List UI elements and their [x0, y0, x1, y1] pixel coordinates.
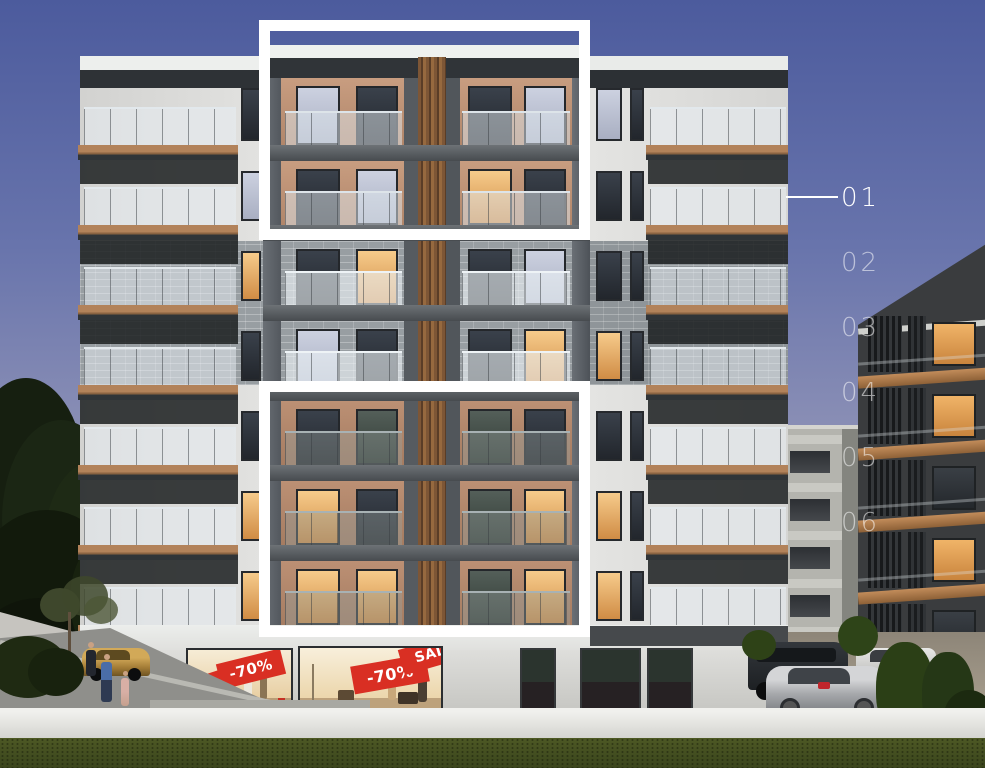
floor-label-05[interactable]: 05	[841, 444, 891, 472]
floor-01-leader-line	[786, 196, 838, 198]
floor-label-04[interactable]: 04	[841, 379, 891, 407]
floor-selector: 01 02 03 04 05 06	[0, 0, 985, 768]
floor-label-01[interactable]: 01	[841, 184, 891, 212]
floor-label-06[interactable]: 06	[841, 509, 891, 537]
building-floor-selector-screen: SALE -70% -70% SALE	[0, 0, 985, 768]
floor-label-03[interactable]: 03	[841, 314, 891, 342]
floor-label-02[interactable]: 02	[841, 249, 891, 277]
